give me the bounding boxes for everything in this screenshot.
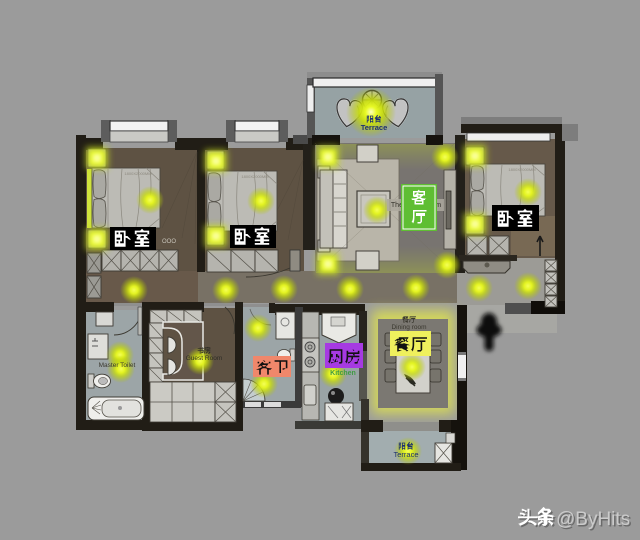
svg-text:1800X2000MM: 1800X2000MM [124,171,151,176]
svg-text:OOO: OOO [162,239,176,245]
svg-text:Terrace: Terrace [393,450,418,459]
svg-text:@ByHits: @ByHits [556,509,630,530]
svg-text:Master Toilet: Master Toilet [99,362,136,369]
svg-text:Guest Room: Guest Room [186,355,223,362]
svg-text:1800X2000MM: 1800X2000MM [241,174,268,179]
svg-text:Terrace: Terrace [361,123,388,132]
svg-text:Kitchen: Kitchen [330,370,356,377]
svg-text:1800X2000MM: 1800X2000MM [508,167,535,172]
svg-text:Dining room: Dining room [391,324,426,331]
